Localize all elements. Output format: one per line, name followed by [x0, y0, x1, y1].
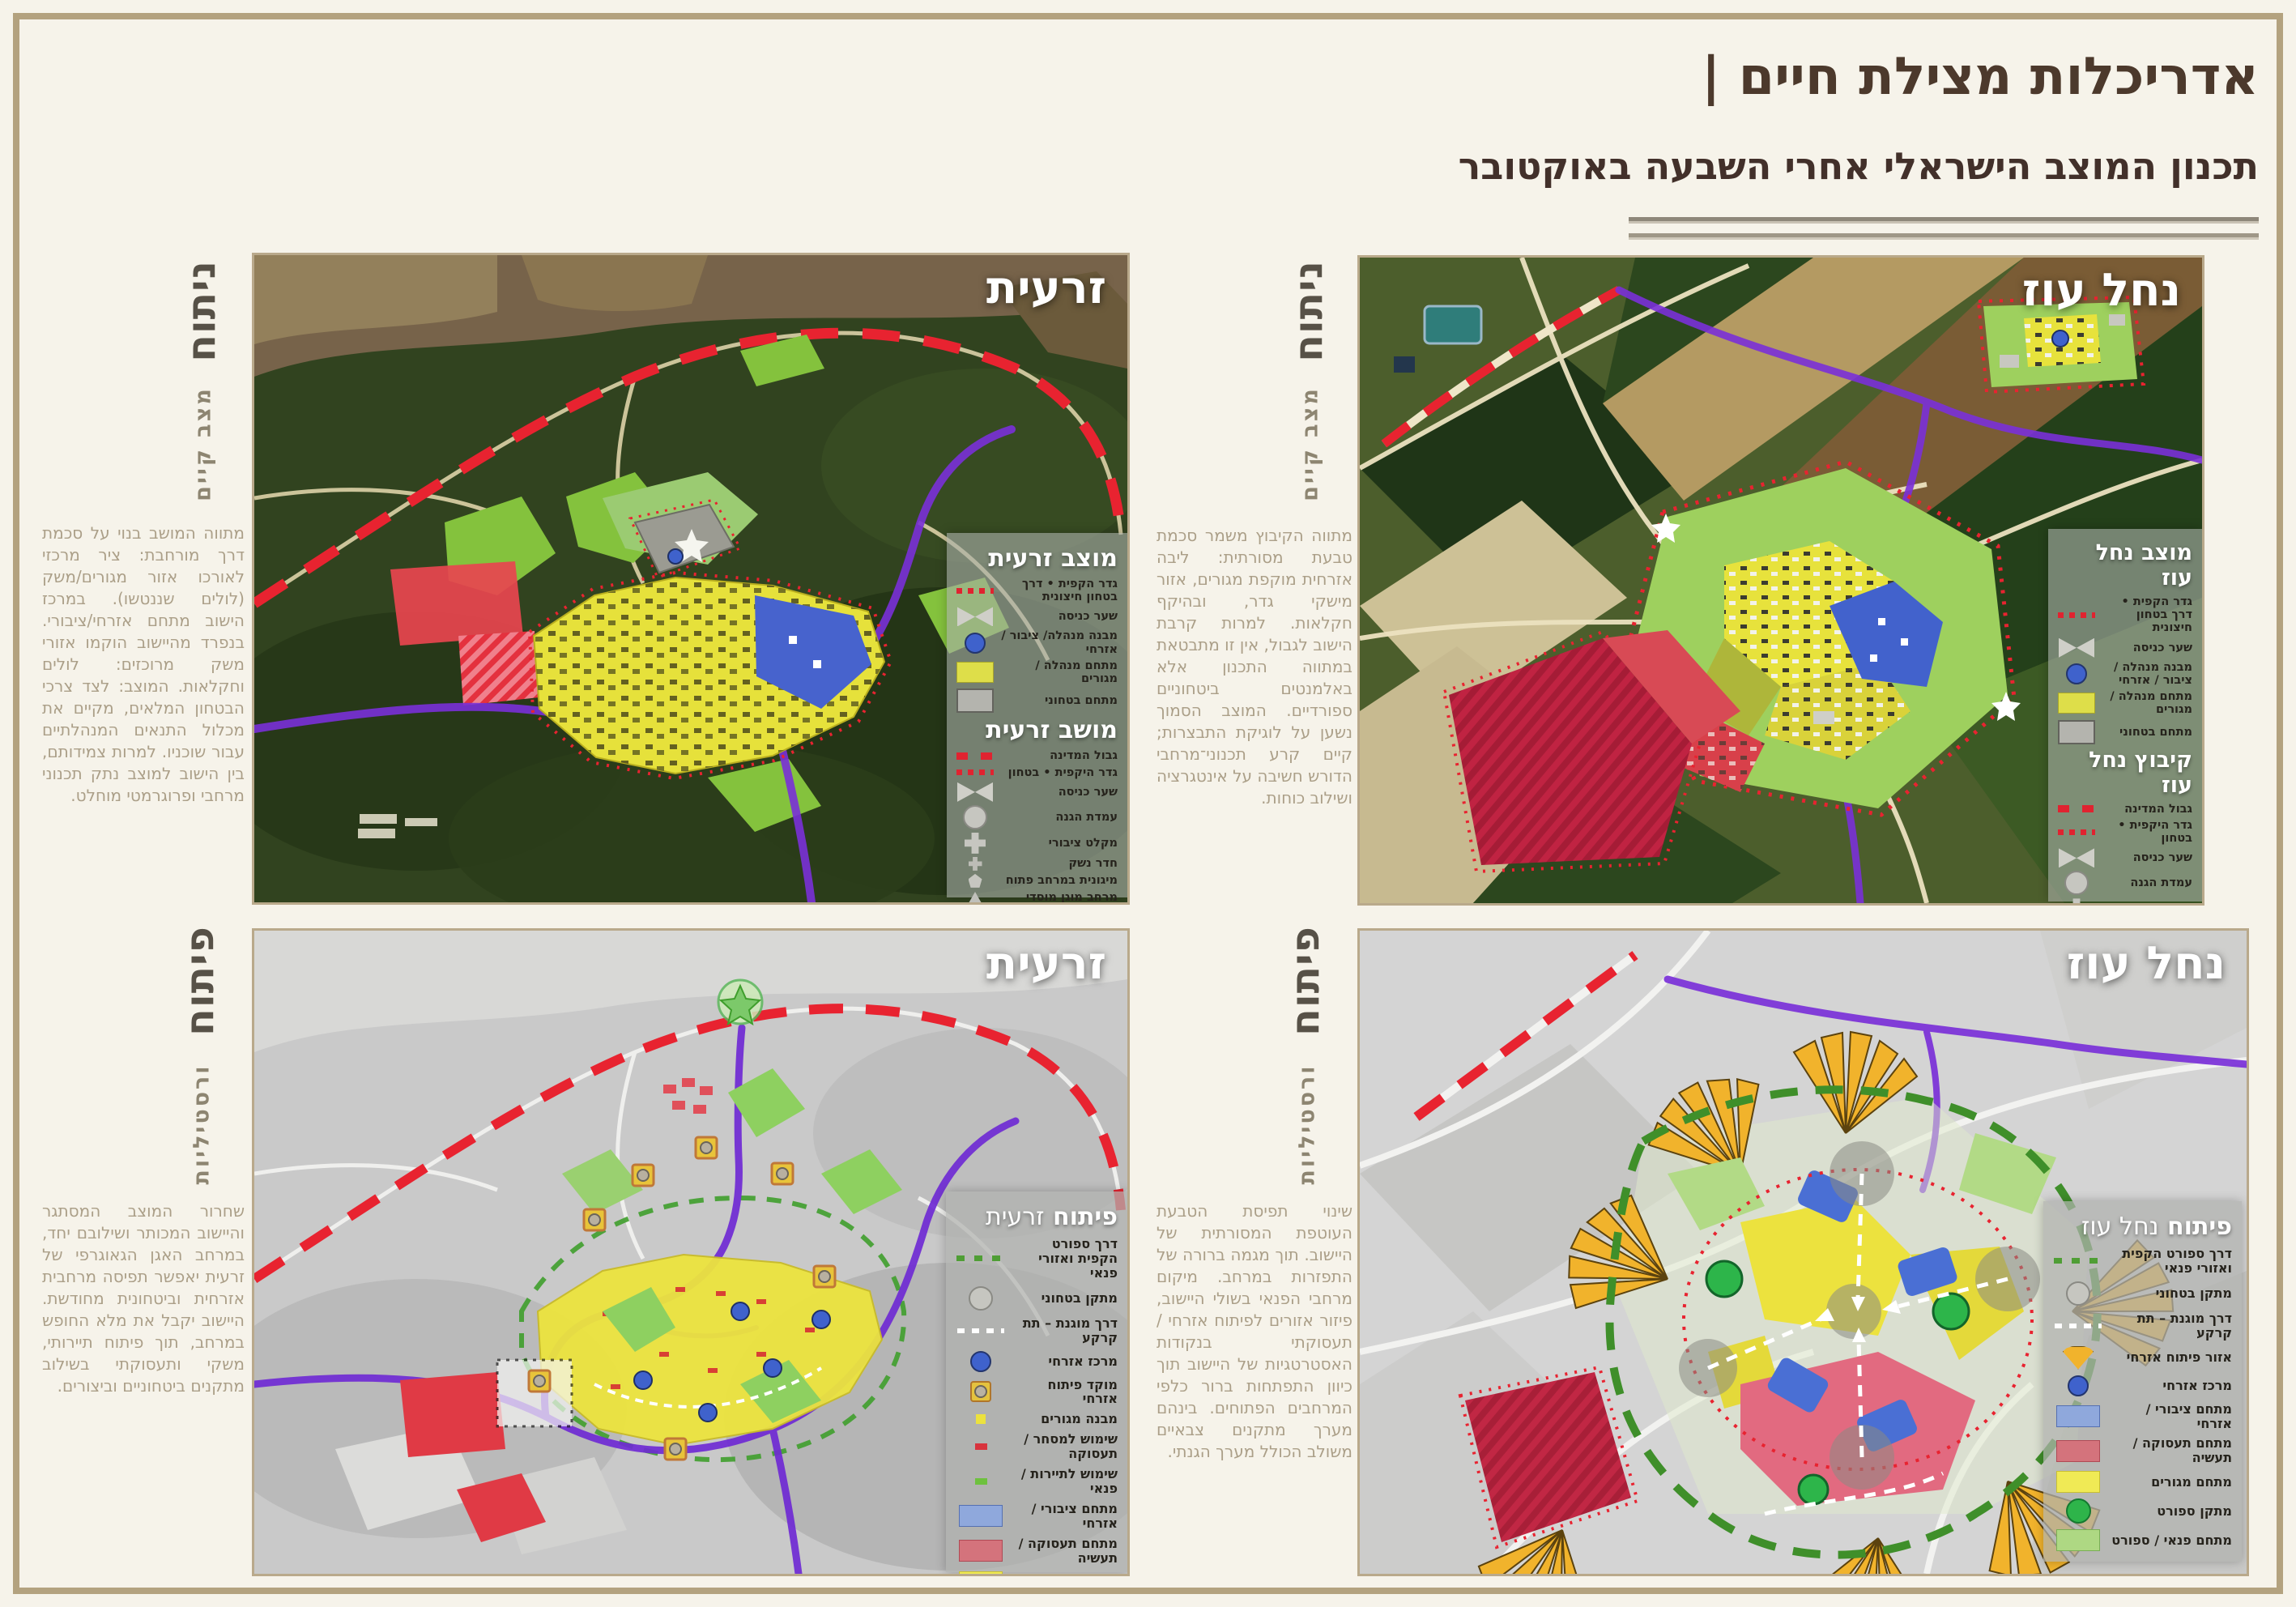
legend-section-title: מוצב זרעית [956, 544, 1118, 573]
map-title-nahaloz-development: נחל עוז [2067, 937, 2226, 990]
legend-label: דרך ספורט הקפית ואזורי פנאי [2108, 1247, 2232, 1276]
legend-item: עמדת הגנה [956, 805, 1118, 829]
entrance-gate-icon [2059, 638, 2094, 658]
public-compound-icon [2056, 1405, 2100, 1427]
legend-title-bold: פיתוח [1053, 1203, 1118, 1231]
nahaloz-development-legend: פיתוח נחל עוז דרך ספורט הקפית ואזורי פנא… [2043, 1201, 2242, 1562]
legend-label: מבנה מנהלה/ ציבור / אזרחי [999, 629, 1118, 655]
section-sublabel-versatility: ורסטיליות [190, 1064, 215, 1184]
legend-item: מתחם מגורים [2053, 1471, 2232, 1493]
weapons-room-icon [969, 857, 982, 871]
sport-path-icon [2054, 1258, 2102, 1264]
tourism-use-icon [975, 1478, 987, 1485]
legend-item: גדר הקפית • דרך בטחון חיצונית [2058, 595, 2192, 635]
section-sublabel-versatility: ורסטיליות [1295, 1064, 1320, 1184]
industry-compound-icon [2056, 1440, 2100, 1462]
perimeter-fence-icon [956, 588, 994, 594]
zarit-development-map: זרעית פיתוח זרעית דרך ספורט הקפית ואזורי… [252, 928, 1130, 1576]
residential-building-icon [976, 1414, 986, 1424]
nahaloz-analysis-paragraph: מתווה הקיבוץ משמר סכמת טבעת מסורתית: ליב… [1157, 525, 1352, 809]
observation-tower-marker [718, 980, 762, 1024]
industry-zone-hatched [458, 631, 539, 705]
legend-label: גדר היקפית • בטחון [999, 766, 1118, 779]
state-border-icon [956, 752, 994, 760]
legend-label: מרכז אזרחי [1011, 1354, 1118, 1369]
legend-label: מקלט ציבורי [999, 837, 1118, 850]
legend-title-rest: זרעית [986, 1203, 1045, 1231]
legend-item: מרחב מוגן מוסדי [956, 891, 1118, 904]
legend-item: מקלט ציבורי [956, 833, 1118, 854]
zarit-development-paragraph: שחרור המוצב המסתגר והיישוב המכותר ושילוב… [42, 1200, 245, 1397]
legend-label: מתחם מגורים [1011, 1575, 1118, 1576]
leisure-compound-icon [2056, 1529, 2100, 1551]
legend-item: מיגונית במרחב פתוח [956, 874, 1118, 888]
legend-label: חדר נשק [999, 857, 1118, 870]
residential-compound-icon [959, 1571, 1003, 1577]
legend-label: מתחם תעסוקה / תעשיה [1011, 1537, 1118, 1566]
section-label-analysis: ניתוח [179, 260, 225, 362]
legend-label: מתחם בטחוני [999, 694, 1118, 707]
legend-item: גבול המדינה [956, 749, 1118, 762]
legend-label: שימוש למסחר / תעסוקה [1011, 1432, 1118, 1461]
industry-zone [390, 561, 523, 646]
legend-label: מתחם תעסוקה / תעשיה [2108, 1436, 2232, 1465]
legend-label: גדר היקפית • בטחון [2100, 819, 2192, 845]
legend-title-bold: פיתוח [2167, 1213, 2232, 1241]
legend-title-rest: נחל עוז [2081, 1213, 2159, 1241]
commerce-use-icon [975, 1443, 987, 1450]
legend-label: גבול המדינה [999, 749, 1118, 762]
civic-center-icon [970, 1351, 991, 1372]
legend-label: דרך ספורט הקפית ואזורי פנאי [1011, 1237, 1118, 1281]
legend-item: מבנה מנהלה/ ציבור / אזרחי [956, 629, 1118, 655]
legend-label: מיגונית במרחב פתוח [999, 874, 1118, 887]
legend-item: שימוש למסחר / תעסוקה [956, 1432, 1118, 1461]
legend-item: גדר הקפית • דרך בטחון חיצונית [956, 578, 1118, 603]
legend-label: דרך מוגנת – תת קרקע [2108, 1311, 2232, 1341]
legend-item: מוקד פיתוח אזרחי [956, 1378, 1118, 1407]
sport-facility-icon [2066, 1498, 2091, 1524]
section-sublabel-existing-state: מצב קיים [1298, 386, 1323, 501]
legend-label: גבול המדינה [2100, 803, 2192, 816]
security-fence-icon [2058, 829, 2095, 835]
page-subtitle: תכנון המוצב הישראלי אחרי השבעה באוקטובר [1459, 144, 2259, 188]
legend-label: מתחם מנהלה / מגורים [999, 659, 1118, 685]
legend-section-title: קיבוץ נחל עוז [2058, 748, 2192, 798]
legend-item: עמדת הגנה [2058, 871, 2192, 895]
legend-label: מתקן בטחוני [1011, 1291, 1118, 1306]
legend-item: שער כניסה [956, 782, 1118, 802]
legend-section-title: מוצב נחל עוז [2058, 540, 2192, 590]
legend-item: דרך ספורט הקפית ואזורי פנאי [956, 1237, 1118, 1281]
legend-item: מתחם בטחוני [956, 688, 1118, 713]
legend-item: מתחם תעסוקה / תעשיה [956, 1537, 1118, 1566]
underground-road-icon [957, 1328, 1004, 1333]
sport-path-icon [956, 1255, 1005, 1261]
legend-item: מתחם בטחוני [2058, 720, 2192, 744]
open-space-shelter-icon [969, 874, 982, 888]
legend-item: דרך מוגנת – תת קרקע [2053, 1311, 2232, 1341]
legend-item: שער כניסה [2058, 638, 2192, 658]
legend-item: מבנה מנהלה / ציבור / אזרחי [2058, 661, 2192, 687]
legend-item: מתחם ציבורי / אזרחי [2053, 1402, 2232, 1431]
map-title-nahaloz-analysis: נחל עוז [2022, 264, 2181, 317]
section-label-development: פיתוח [177, 926, 224, 1036]
industry-compound-icon [959, 1540, 1003, 1562]
legend-label: מתחם ציבורי / אזרחי [1011, 1502, 1118, 1531]
legend-item: שער כניסה [2058, 848, 2192, 867]
header-rule-bottom [1629, 233, 2259, 237]
nahaloz-analysis-map: נחל עוז מוצב נחל עוז גדר הקפית • דרך בטח… [1357, 255, 2204, 906]
entrance-gate-icon [957, 607, 993, 626]
legend-label: גדר הקפית • דרך בטחון חיצונית [999, 578, 1118, 603]
institutional-protected-space-icon [969, 892, 982, 903]
legend-label: מתקן ספורט [2108, 1504, 2232, 1519]
civil-development-area-icon [2063, 1346, 2094, 1370]
defense-post-icon [2064, 871, 2089, 895]
legend-item: מרכז אזרחי [2053, 1375, 2232, 1396]
legend-label: שער כניסה [999, 786, 1118, 799]
legend-item: שימוש לתיירות / פנאי [956, 1467, 1118, 1496]
legend-item: אזור פיתוח אזרחי [2053, 1346, 2232, 1370]
legend-label: מרחב מוגן מוסדי [999, 891, 1118, 904]
legend-item: מתחם תעסוקה / תעשיה [2053, 1436, 2232, 1465]
legend-title: פיתוח נחל עוז [2053, 1213, 2232, 1241]
legend-label: מתחם בטחוני [2100, 726, 2192, 739]
legend-item: מתחם מנהלה / מגורים [956, 659, 1118, 685]
legend-label: מבנה מגורים [1011, 1412, 1118, 1426]
entrance-gate-icon [957, 782, 993, 802]
section-label-development: פיתוח [1283, 926, 1329, 1036]
legend-item: גדר היקפית • בטחון [2058, 819, 2192, 845]
legend-item: מתחם מגורים [956, 1571, 1118, 1577]
legend-title: פיתוח זרעית [956, 1203, 1118, 1231]
legend-label: מתחם ציבורי / אזרחי [2108, 1402, 2232, 1431]
security-compound-icon [2058, 720, 2095, 744]
legend-item: מתקן בטחוני [2053, 1281, 2232, 1306]
security-compound-icon [956, 688, 994, 713]
legend-label: מקלט ציבורי [2100, 902, 2192, 906]
defense-post-icon [963, 805, 987, 829]
legend-label: שער כניסה [2100, 642, 2192, 654]
legend-label: מתחם מגורים [2108, 1475, 2232, 1490]
admin-residential-compound-icon [2058, 693, 2095, 714]
legend-label: שער כניסה [999, 610, 1118, 623]
legend-item: מתקן בטחוני [956, 1286, 1118, 1311]
perimeter-fence-icon [2058, 612, 2095, 618]
legend-label: מתחם פנאי / ספורט [2108, 1533, 2232, 1548]
underground-road-icon [2055, 1324, 2102, 1328]
legend-label: מרכז אזרחי [2108, 1379, 2232, 1393]
legend-label: עמדת הגנה [2100, 876, 2192, 889]
legend-item: חדר נשק [956, 857, 1118, 871]
legend-item: מתחם מנהלה / מגורים [2058, 690, 2192, 716]
admin-residential-compound-icon [956, 662, 994, 683]
admin-public-building-icon [965, 633, 986, 654]
zarit-analysis-paragraph: מתווה המושב בנוי על סכמת דרך מורחבת: ציר… [42, 522, 245, 807]
legend-item: דרך ספורט הקפית ואזורי פנאי [2053, 1247, 2232, 1276]
nahaloz-development-paragraph: שינוי תפיסת הטבעת העוטפת המסורתית של היי… [1157, 1200, 1352, 1463]
legend-item: מתחם ציבורי / אזרחי [956, 1502, 1118, 1531]
public-shelter-icon [2066, 898, 2087, 906]
poster: אדריכלות מצילת חיים | תכנון המוצב הישראל… [0, 0, 2296, 1607]
civil-development-node-icon [970, 1381, 991, 1402]
legend-label: מתקן בטחוני [2108, 1286, 2232, 1301]
section-sublabel-existing-state: מצב קיים [191, 386, 216, 501]
legend-label: אזור פיתוח אזרחי [2108, 1350, 2232, 1365]
legend-item: מתקן ספורט [2053, 1498, 2232, 1524]
legend-label: שער כניסה [2100, 851, 2192, 864]
nahaloz-development-map: נחל עוז פיתוח נחל עוז דרך ספורט הקפית וא… [1357, 928, 2249, 1576]
residential-compound-icon [2056, 1471, 2100, 1493]
legend-label: דרך מוגנת – תת קרקע [1011, 1316, 1118, 1345]
security-facility-icon [969, 1286, 993, 1311]
legend-label: מבנה מנהלה / ציבור / אזרחי [2100, 661, 2192, 687]
state-border-icon [2058, 805, 2095, 812]
legend-item: מקלט ציבורי [2058, 898, 2192, 906]
security-fence-icon [956, 769, 994, 775]
legend-item: דרך מוגנת – תת קרקע [956, 1316, 1118, 1345]
legend-item: שער כניסה [956, 607, 1118, 626]
legend-item: מרכז אזרחי [956, 1351, 1118, 1372]
zarit-analysis-legend: מוצב זרעית גדר הקפית • דרך בטחון חיצונית… [947, 533, 1127, 897]
security-facility-icon [2066, 1281, 2090, 1306]
map-title-zarit-analysis: זרעית [986, 262, 1106, 314]
admin-public-building-icon [2066, 663, 2087, 684]
legend-label: שימוש לתיירות / פנאי [1011, 1467, 1118, 1496]
legend-label: מוקד פיתוח אזרחי [1011, 1378, 1118, 1407]
legend-label: עמדת הגנה [999, 811, 1118, 824]
legend-section-title: מושב זרעית [956, 716, 1118, 744]
map-title-zarit-development: זרעית [986, 937, 1106, 990]
nahaloz-analysis-legend: מוצב נחל עוז גדר הקפית • דרך בטחון חיצונ… [2048, 529, 2202, 902]
section-label-analysis: ניתוח [1286, 260, 1332, 362]
public-shelter-icon [965, 833, 986, 854]
legend-label: גדר הקפית • דרך בטחון חיצונית [2100, 595, 2192, 635]
entrance-gate-icon [2059, 848, 2094, 867]
legend-item: גבול המדינה [2058, 803, 2192, 816]
zarit-development-legend: פיתוח זרעית דרך ספורט הקפית ואזורי פנאי … [946, 1191, 1127, 1572]
legend-item: מבנה מגורים [956, 1412, 1118, 1426]
zarit-analysis-map: זרעית מוצב זרעית גדר הקפית • דרך בטחון ח… [252, 253, 1130, 905]
legend-item: גדר היקפית • בטחון [956, 766, 1118, 779]
public-compound-icon [959, 1505, 1003, 1527]
legend-item: מתחם פנאי / ספורט [2053, 1529, 2232, 1551]
page-title: אדריכלות מצילת חיים | [1702, 47, 2259, 107]
civic-center-icon [2068, 1375, 2089, 1396]
legend-label: מתחם מנהלה / מגורים [2100, 690, 2192, 716]
header-rule-top [1629, 217, 2259, 221]
